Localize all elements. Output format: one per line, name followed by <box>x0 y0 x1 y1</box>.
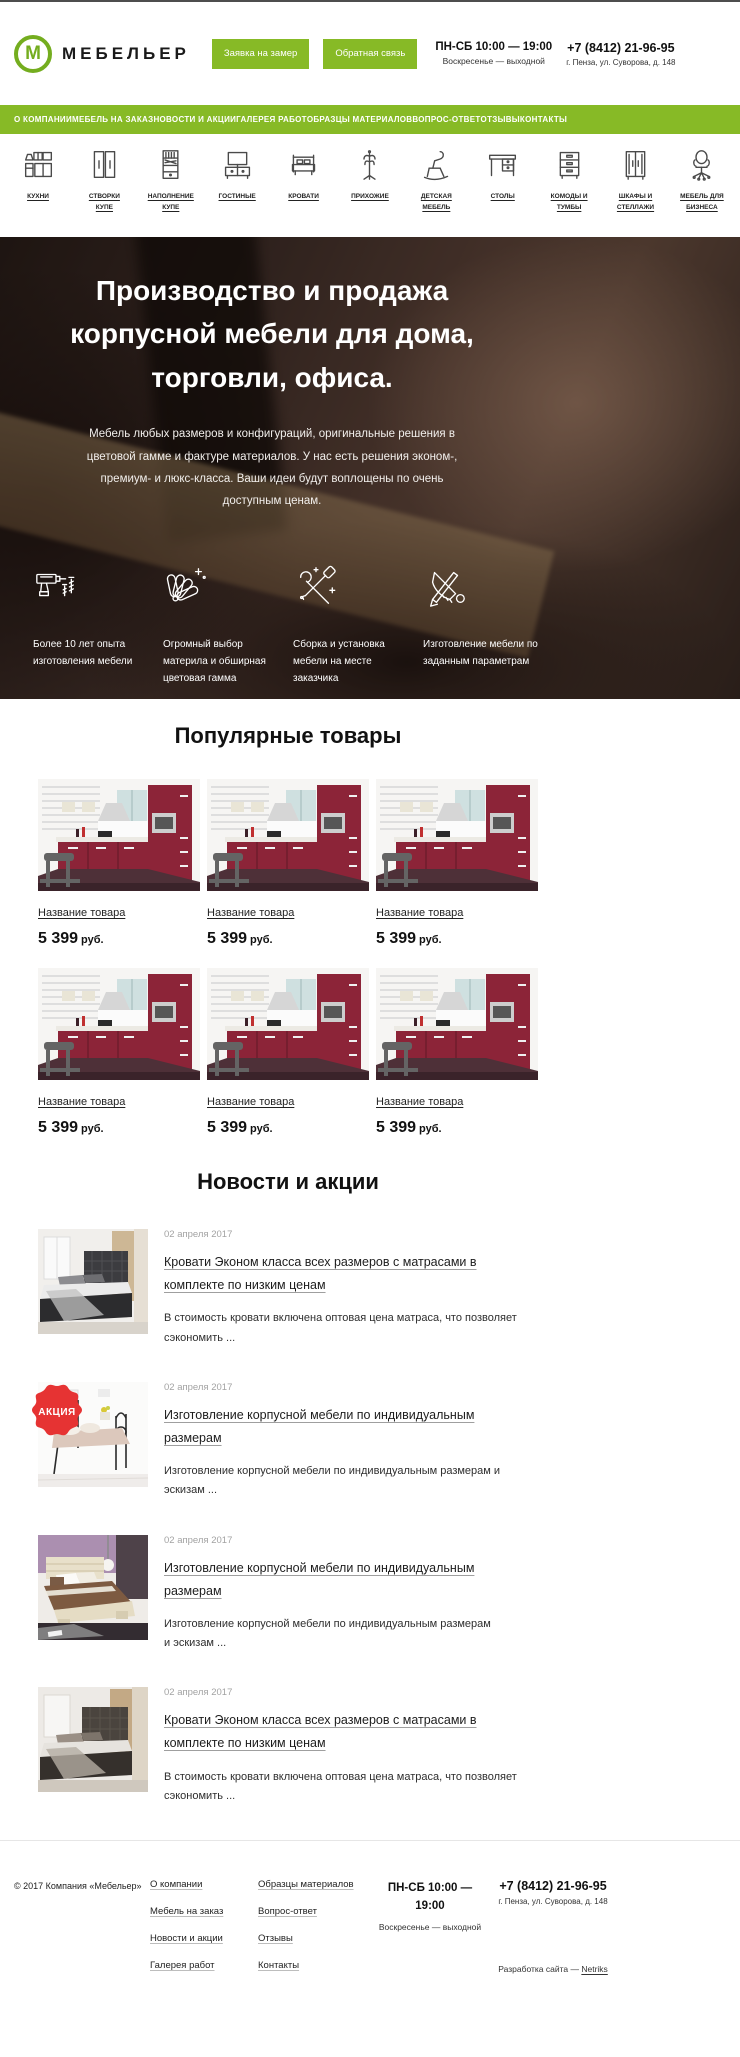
news-text: Изготовление корпусной мебели по индивид… <box>164 1462 524 1501</box>
price-currency: руб. <box>81 1123 104 1135</box>
category-label: ДЕТСКАЯ МЕБЕЛЬ <box>412 191 460 213</box>
drill-icon <box>33 563 79 609</box>
hero-subtitle: Мебель любых размеров и конфигураций, ор… <box>72 423 472 513</box>
product-price: 5 399руб. <box>207 930 369 948</box>
price-value: 5 399 <box>376 930 416 947</box>
footer: © 2017 Компания «Мебельер» О компании Ме… <box>0 1840 740 2017</box>
price-value: 5 399 <box>376 1119 416 1136</box>
logo-letter: М <box>25 43 41 65</box>
category-kitchens[interactable]: КУХНИ <box>14 148 62 227</box>
feedback-button[interactable]: Обратная связь <box>323 39 417 69</box>
product-price: 5 399руб. <box>38 1119 200 1137</box>
footer-working-hours: ПН-СБ 10:00 — 19:00 Воскресенье — выходн… <box>374 1879 486 1987</box>
office-chair-icon <box>685 148 718 181</box>
news-list: 02 апреля 2017 Кровати Эконом класса все… <box>38 1229 530 1806</box>
price-currency: руб. <box>250 934 273 946</box>
product-name-link[interactable]: Название товара <box>207 907 294 919</box>
feature-assembly: Сборка и установка мебели на месте заказ… <box>293 563 423 687</box>
news-title-link[interactable]: Кровати Эконом класса всех размеров с ма… <box>164 1251 524 1297</box>
hero-features: Более 10 лет опыта изготовления мебели О… <box>33 563 740 687</box>
category-commodes[interactable]: КОМОДЫ И ТУМБЫ <box>545 148 593 227</box>
working-hours-main: ПН-СБ 10:00 — 19:00 <box>374 1879 486 1916</box>
nav-item-faq[interactable]: ВОПРОС-ОТВЕТ <box>412 115 480 124</box>
category-sliding-doors[interactable]: СТВОРКИ КУПЕ <box>80 148 128 227</box>
category-business-furniture[interactable]: МЕБЕЛЬ ДЛЯ БИЗНЕСА <box>678 148 726 227</box>
nav-item-material-samples[interactable]: ОБРАЗЦЫ МАТЕРИАЛОВ <box>307 115 413 124</box>
product-name-link[interactable]: Название товара <box>38 907 125 919</box>
header-phone: +7 (8412) 21-96-95 <box>566 41 675 55</box>
product-price: 5 399руб. <box>376 930 538 948</box>
product-name-link[interactable]: Название товара <box>376 907 463 919</box>
palette-fan-icon <box>163 563 209 609</box>
category-bar: КУХНИ СТВОРКИ КУПЕ НАПОЛНЕНИЕ КУПЕ ГОСТИ… <box>14 134 726 237</box>
promo-badge: АКЦИЯ <box>28 1384 86 1442</box>
product-price: 5 399руб. <box>376 1119 538 1137</box>
news-item: 02 апреля 2017 Кровати Эконом класса все… <box>38 1687 530 1806</box>
price-value: 5 399 <box>38 930 78 947</box>
products-section-title: Популярные товары <box>38 723 538 749</box>
news-text: В стоимость кровати включена оптовая цен… <box>164 1309 524 1348</box>
news-image-bed-wood[interactable] <box>38 1535 148 1640</box>
product-image[interactable] <box>376 779 538 891</box>
feature-text: Более 10 лет опыта изготовления мебели <box>33 636 151 670</box>
desk-icon <box>486 148 519 181</box>
footer-links-col2: Образцы материалов Вопрос-ответ Отзывы К… <box>258 1879 368 1987</box>
living-room-icon <box>221 148 254 181</box>
sliding-doors-icon <box>88 148 121 181</box>
news-date: 02 апреля 2017 <box>164 1382 524 1393</box>
product-name-link[interactable]: Название товара <box>376 1096 463 1108</box>
logo-icon: М <box>14 35 52 73</box>
news-date: 02 апреля 2017 <box>164 1229 524 1240</box>
category-hallways[interactable]: ПРИХОЖИЕ <box>346 148 394 227</box>
feature-custom-sizes: Изготовление мебели по заданным параметр… <box>423 563 553 687</box>
news-image-bed-dark[interactable] <box>38 1687 148 1792</box>
news-date: 02 апреля 2017 <box>164 1687 524 1698</box>
category-label: НАПОЛНЕНИЕ КУПЕ <box>147 191 195 213</box>
wardrobe-filling-icon <box>154 148 187 181</box>
product-image[interactable] <box>207 968 369 1080</box>
news-image-bed-dark[interactable] <box>38 1229 148 1334</box>
footer-link-gallery[interactable]: Галерея работ <box>150 1960 215 1971</box>
category-label: ПРИХОЖИЕ <box>346 191 394 202</box>
news-item: 02 апреля 2017 Кровати Эконом класса все… <box>38 1229 530 1348</box>
logo-text: МЕБЕЛЬЕР <box>62 44 190 64</box>
bed-icon <box>287 148 320 181</box>
news-date: 02 апреля 2017 <box>164 1535 494 1546</box>
logo[interactable]: М МЕБЕЛЬЕР <box>14 35 190 73</box>
category-wardrobes[interactable]: ШКАФЫ И СТЕЛЛАЖИ <box>612 148 660 227</box>
nav-item-reviews[interactable]: ОТЗЫВЫ <box>481 115 520 124</box>
news-item: 02 апреля 2017 Изготовление корпусной ме… <box>38 1535 530 1654</box>
product-price: 5 399руб. <box>207 1119 369 1137</box>
category-kids-furniture[interactable]: ДЕТСКАЯ МЕБЕЛЬ <box>412 148 460 227</box>
commode-icon <box>553 148 586 181</box>
category-label: КРОВАТИ <box>280 191 328 202</box>
footer-link-about[interactable]: О компании <box>150 1879 202 1890</box>
header-working-hours: ПН-СБ 10:00 — 19:00 Воскресенье — выходн… <box>435 41 552 66</box>
tools-icon <box>293 563 339 609</box>
kitchen-icon <box>22 148 55 181</box>
product-card: Название товара 5 399руб. <box>207 968 369 1137</box>
footer-address: г. Пенза, ул. Суворова, д. 148 <box>494 1897 612 1906</box>
price-currency: руб. <box>81 934 104 946</box>
working-hours-sub: Воскресенье — выходной <box>374 1922 486 1932</box>
nav-item-contacts[interactable]: КОНТАКТЫ <box>520 115 567 124</box>
news-item: АКЦИЯ 02 апреля 2017 Изготовление корпус… <box>38 1382 530 1501</box>
wardrobe-icon <box>619 148 652 181</box>
feature-materials: Огромный выбор материла и обширная цвето… <box>163 563 293 687</box>
footer-link-reviews[interactable]: Отзывы <box>258 1933 293 1944</box>
price-currency: руб. <box>250 1123 273 1135</box>
price-currency: руб. <box>419 934 442 946</box>
category-tables[interactable]: СТОЛЫ <box>479 148 527 227</box>
category-label: ШКАФЫ И СТЕЛЛАЖИ <box>612 191 660 213</box>
news-title-link[interactable]: Изготовление корпусной мебели по индивид… <box>164 1404 524 1450</box>
price-currency: руб. <box>419 1123 442 1135</box>
footer-phone: +7 (8412) 21-96-95 <box>494 1879 612 1893</box>
coat-rack-icon <box>353 148 386 181</box>
measure-request-button[interactable]: Заявка на замер <box>212 39 309 69</box>
product-image[interactable] <box>207 779 369 891</box>
footer-links-col1: О компании Мебель на заказ Новости и акц… <box>150 1879 250 1987</box>
nav-item-custom-furniture[interactable]: МЕБЕЛЬ НА ЗАКАЗ <box>72 115 153 124</box>
category-label: ГОСТИНЫЕ <box>213 191 261 202</box>
popular-products-section: Популярные товары Название товара 5 399р… <box>0 699 740 1137</box>
news-section: Новости и акции 02 апреля 2017 Кровати Э… <box>0 1143 740 1806</box>
saw-pencil-icon <box>423 563 469 609</box>
developer-link[interactable]: Netriks <box>581 1964 607 1974</box>
price-value: 5 399 <box>38 1119 78 1136</box>
news-text: В стоимость кровати включена оптовая цен… <box>164 1768 524 1807</box>
feature-text: Огромный выбор материла и обширная цвето… <box>163 636 281 687</box>
product-card: Название товара 5 399руб. <box>376 779 538 948</box>
nav-item-gallery[interactable]: ГАЛЕРЕЯ РАБОТ <box>236 115 307 124</box>
product-image[interactable] <box>376 968 538 1080</box>
main-nav: О КОМПАНИИ МЕБЕЛЬ НА ЗАКАЗ НОВОСТИ И АКЦ… <box>0 105 740 134</box>
working-hours-sub: Воскресенье — выходной <box>435 56 552 66</box>
footer-link-material-samples[interactable]: Образцы материалов <box>258 1879 354 1890</box>
header: М МЕБЕЛЬЕР Заявка на замер Обратная связ… <box>0 2 740 105</box>
feature-experience: Более 10 лет опыта изготовления мебели <box>33 563 163 687</box>
footer-contact: +7 (8412) 21-96-95 г. Пенза, ул. Суворов… <box>494 1879 612 1987</box>
footer-link-faq[interactable]: Вопрос-ответ <box>258 1906 317 1917</box>
header-contact: +7 (8412) 21-96-95 г. Пенза, ул. Суворов… <box>566 41 675 67</box>
category-beds[interactable]: КРОВАТИ <box>280 148 328 227</box>
feature-text: Изготовление мебели по заданным параметр… <box>423 636 541 670</box>
category-label: СТОЛЫ <box>479 191 527 202</box>
category-label: МЕБЕЛЬ ДЛЯ БИЗНЕСА <box>678 191 726 213</box>
category-label: СТВОРКИ КУПЕ <box>80 191 128 213</box>
product-name-link[interactable]: Название товара <box>207 1096 294 1108</box>
nav-item-news[interactable]: НОВОСТИ И АКЦИИ <box>153 115 236 124</box>
category-label: КОМОДЫ И ТУМБЫ <box>545 191 593 213</box>
footer-link-news[interactable]: Новости и акции <box>150 1933 223 1944</box>
price-value: 5 399 <box>207 1119 247 1136</box>
news-title-link[interactable]: Изготовление корпусной мебели по индивид… <box>164 1557 494 1603</box>
footer-link-custom-furniture[interactable]: Мебель на заказ <box>150 1906 223 1917</box>
product-price: 5 399руб. <box>38 930 200 948</box>
working-hours-main: ПН-СБ 10:00 — 19:00 <box>435 41 552 53</box>
product-name-link[interactable]: Название товара <box>38 1096 125 1108</box>
product-image[interactable] <box>38 779 200 891</box>
nav-item-about[interactable]: О КОМПАНИИ <box>14 115 72 124</box>
price-value: 5 399 <box>207 930 247 947</box>
hero-banner: Производство и продажа корпусной мебели … <box>0 237 740 699</box>
promo-badge-label: АКЦИЯ <box>38 1407 76 1418</box>
product-card: Название товара 5 399руб. <box>38 968 200 1137</box>
footer-copyright: © 2017 Компания «Мебельер» <box>14 1879 142 1987</box>
category-label: КУХНИ <box>14 191 62 202</box>
news-section-title: Новости и акции <box>38 1169 538 1195</box>
products-grid: Название товара 5 399руб. Название товар… <box>38 779 538 1137</box>
developer-credit-prefix: Разработка сайта — <box>498 1964 581 1974</box>
product-card: Название товара 5 399руб. <box>376 968 538 1137</box>
category-living-rooms[interactable]: ГОСТИНЫЕ <box>213 148 261 227</box>
product-card: Название товара 5 399руб. <box>38 779 200 948</box>
kids-chair-icon <box>420 148 453 181</box>
footer-link-contacts[interactable]: Контакты <box>258 1960 299 1971</box>
developer-credit: Разработка сайта — Netriks <box>494 1964 612 1974</box>
news-title-link[interactable]: Кровати Эконом класса всех размеров с ма… <box>164 1709 524 1755</box>
news-text: Изготовление корпусной мебели по индивид… <box>164 1615 494 1654</box>
feature-text: Сборка и установка мебели на месте заказ… <box>293 636 411 687</box>
hero-title: Производство и продажа корпусной мебели … <box>42 269 502 399</box>
category-wardrobe-filling[interactable]: НАПОЛНЕНИЕ КУПЕ <box>147 148 195 227</box>
header-address: г. Пенза, ул. Суворова, д. 148 <box>566 58 675 67</box>
product-image[interactable] <box>38 968 200 1080</box>
product-card: Название товара 5 399руб. <box>207 779 369 948</box>
